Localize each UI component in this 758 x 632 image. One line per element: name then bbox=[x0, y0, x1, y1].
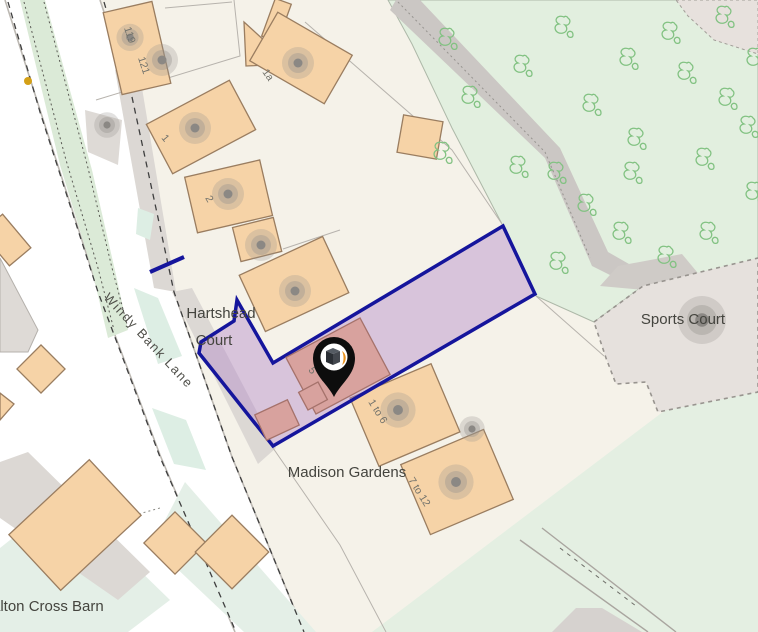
house-blob bbox=[94, 112, 120, 138]
house-blob bbox=[212, 178, 244, 210]
house-blob bbox=[380, 392, 415, 427]
hartshead-court-label-line2: Court bbox=[196, 332, 234, 349]
map-viewport[interactable]: Hartshead Court Windy Bank Lane Madison … bbox=[0, 0, 758, 632]
madison-gardens-label: Madison Gardens bbox=[288, 464, 406, 481]
house-blob bbox=[438, 464, 473, 499]
house-blob bbox=[459, 416, 485, 442]
house-blob bbox=[282, 47, 314, 79]
house-blob bbox=[279, 275, 311, 307]
map-canvas[interactable]: Hartshead Court Windy Bank Lane Madison … bbox=[0, 0, 758, 632]
yellow-dot bbox=[24, 77, 32, 85]
building-square bbox=[397, 115, 443, 159]
hartshead-court-label-line1: Hartshead bbox=[186, 305, 255, 322]
house-blob bbox=[179, 112, 211, 144]
house-blob bbox=[245, 229, 277, 261]
barn-label: alton Cross Barn bbox=[0, 598, 104, 615]
sports-court-label: Sports Court bbox=[641, 311, 726, 328]
